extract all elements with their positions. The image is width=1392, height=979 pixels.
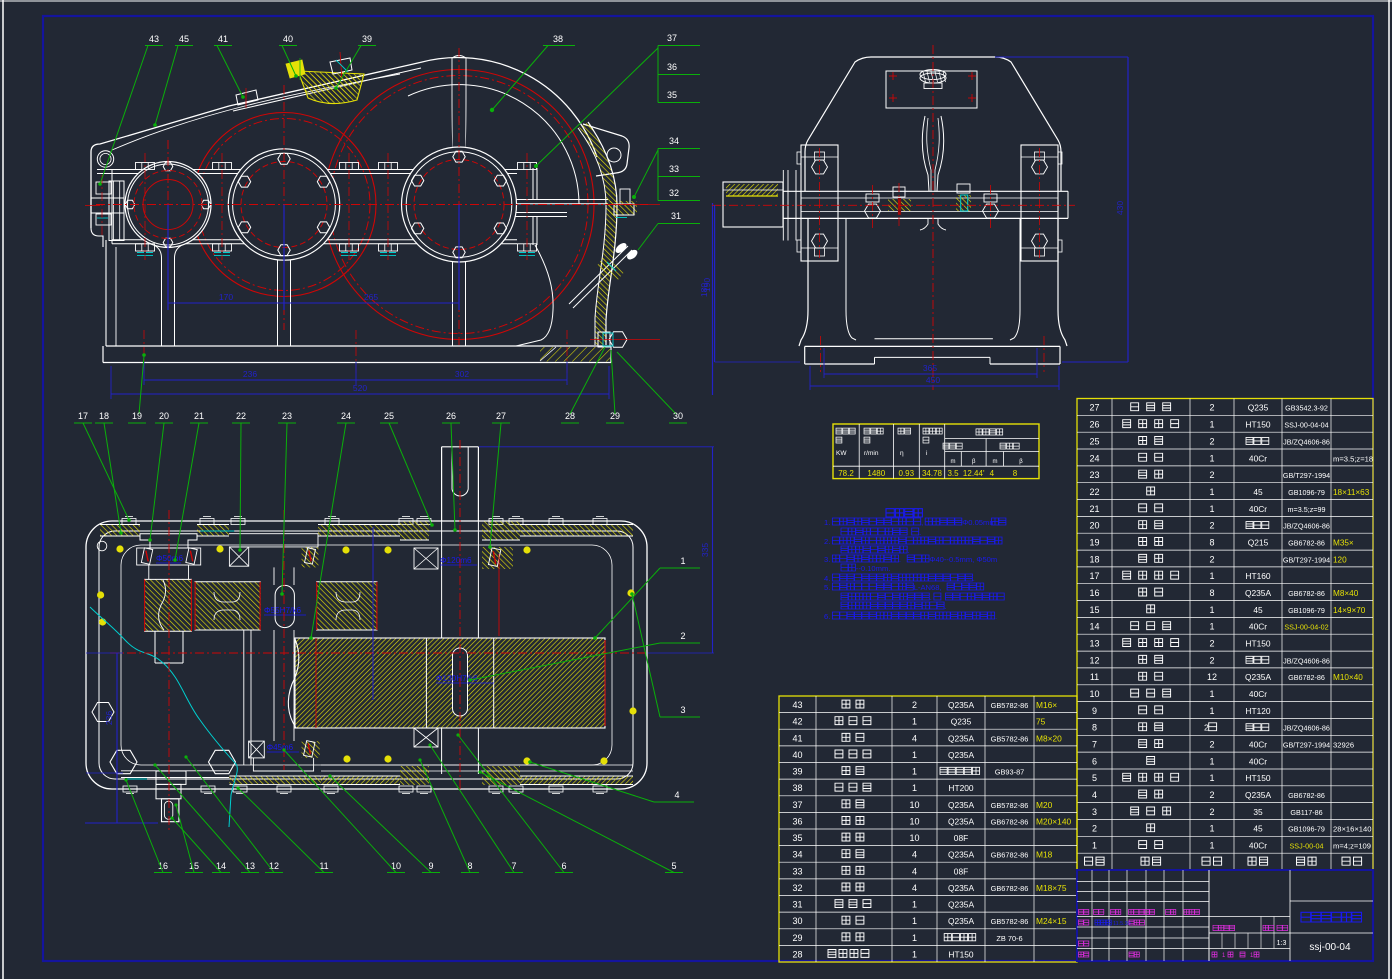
svg-text:78.2: 78.2 [838, 469, 854, 478]
svg-text:GB3542.3-92: GB3542.3-92 [1285, 404, 1328, 413]
svg-text:3.: 3. [824, 555, 830, 564]
svg-text:M8×20: M8×20 [1036, 733, 1062, 743]
svg-text:ZB 70-6: ZB 70-6 [996, 934, 1022, 943]
svg-text:Q235A: Q235A [948, 750, 974, 760]
svg-text:Q235A: Q235A [948, 850, 974, 860]
svg-text:15: 15 [189, 861, 199, 871]
svg-text:29: 29 [792, 933, 802, 943]
svg-text:27: 27 [496, 411, 506, 421]
svg-text:28×16×140: 28×16×140 [1333, 825, 1371, 834]
svg-text:19: 19 [1089, 538, 1099, 548]
svg-text:34.78: 34.78 [922, 469, 943, 478]
svg-text:14: 14 [216, 861, 226, 871]
svg-text:32: 32 [792, 883, 802, 893]
svg-text:Q235A: Q235A [948, 916, 974, 926]
svg-text:265: 265 [364, 292, 378, 302]
svg-text:GB117-86: GB117-86 [1290, 808, 1322, 817]
svg-text:17: 17 [78, 411, 88, 421]
svg-text:45: 45 [1253, 824, 1263, 834]
svg-text:33: 33 [792, 866, 802, 876]
svg-text:34: 34 [792, 850, 802, 860]
svg-text:10: 10 [909, 833, 919, 843]
svg-text:31: 31 [671, 211, 681, 221]
svg-text:Q235A: Q235A [948, 700, 974, 710]
svg-text:12: 12 [269, 861, 279, 871]
svg-text:.: . [930, 593, 932, 602]
svg-text:Φ0.05mm: Φ0.05mm [962, 518, 996, 527]
svg-text:1:3: 1:3 [1277, 940, 1287, 947]
svg-text:430: 430 [1115, 201, 1125, 215]
svg-text:12: 12 [1089, 655, 1099, 665]
svg-text:4: 4 [912, 733, 917, 743]
svg-text:β: β [972, 459, 976, 465]
svg-text:1: 1 [1209, 824, 1214, 834]
svg-text:32: 32 [669, 188, 679, 198]
svg-text:10: 10 [391, 861, 401, 871]
svg-text:8: 8 [1209, 538, 1214, 548]
svg-text:24: 24 [1089, 453, 1099, 463]
svg-text:13: 13 [245, 861, 255, 871]
svg-text:Φ45m6: Φ45m6 [267, 743, 294, 752]
svg-text:2: 2 [1209, 807, 1214, 817]
svg-text:4: 4 [912, 850, 917, 860]
svg-text:30: 30 [673, 411, 683, 421]
svg-text:365: 365 [923, 363, 937, 373]
svg-text:ssj-00-04: ssj-00-04 [1309, 942, 1351, 953]
svg-text:520: 520 [353, 383, 367, 393]
svg-text:1: 1 [912, 750, 917, 760]
svg-text:m=4;z=109: m=4;z=109 [1333, 842, 1371, 851]
svg-text:11: 11 [1090, 672, 1099, 682]
svg-text:2: 2 [1209, 740, 1214, 750]
svg-text:Q235A: Q235A [948, 733, 974, 743]
svg-text:18×11×63: 18×11×63 [1333, 488, 1370, 497]
svg-text:43: 43 [792, 700, 802, 710]
svg-text:23: 23 [1089, 470, 1099, 480]
svg-text:m: m [993, 459, 998, 465]
svg-text:GB5782-86: GB5782-86 [991, 917, 1029, 926]
svg-text:M18: M18 [1036, 850, 1053, 860]
svg-text:24: 24 [341, 411, 351, 421]
svg-text:Φ120m6: Φ120m6 [440, 556, 472, 565]
svg-text:26: 26 [1089, 420, 1099, 430]
svg-text:Q235A: Q235A [1245, 672, 1271, 682]
svg-text:GB1096-79: GB1096-79 [1288, 825, 1325, 834]
svg-text:i: i [926, 450, 927, 457]
svg-text:Φ50m6: Φ50m6 [156, 554, 183, 563]
svg-text:9: 9 [428, 861, 433, 871]
svg-text:GB6782-86: GB6782-86 [991, 884, 1029, 893]
svg-text:SSJ-00-04-02: SSJ-00-04-02 [1284, 623, 1328, 632]
svg-text:HT150: HT150 [1245, 639, 1270, 649]
svg-text:Φ55H7/k6: Φ55H7/k6 [264, 606, 301, 615]
svg-text:M20×140: M20×140 [1036, 816, 1071, 826]
svg-text:M16×: M16× [1036, 700, 1057, 710]
svg-text:13: 13 [1089, 639, 1099, 649]
svg-text:Q235A: Q235A [1245, 588, 1271, 598]
svg-text:2: 2 [912, 700, 917, 710]
svg-text:2: 2 [1209, 436, 1214, 446]
svg-text:36: 36 [667, 62, 677, 72]
svg-text:43: 43 [149, 34, 159, 44]
svg-text:30: 30 [792, 916, 802, 926]
svg-text:GB6782-86: GB6782-86 [1288, 589, 1325, 598]
svg-text:38: 38 [792, 783, 802, 793]
svg-text:36: 36 [792, 816, 802, 826]
svg-text:1: 1 [912, 717, 917, 727]
svg-text:41: 41 [218, 34, 228, 44]
svg-text:1: 1 [1209, 756, 1214, 766]
svg-text:40Cr: 40Cr [1249, 841, 1267, 851]
svg-text:4: 4 [912, 866, 917, 876]
svg-text:1: 1 [912, 949, 917, 959]
svg-text:1: 1 [680, 556, 685, 566]
svg-text:1: 1 [1209, 773, 1214, 783]
svg-text:GB6782-86: GB6782-86 [1288, 539, 1325, 548]
svg-text:10: 10 [909, 816, 919, 826]
svg-text:M8×40: M8×40 [1333, 589, 1359, 598]
svg-text:12.44': 12.44' [963, 469, 985, 478]
svg-text:M20: M20 [1036, 800, 1053, 810]
svg-text:38: 38 [553, 34, 563, 44]
svg-text:4: 4 [674, 790, 679, 800]
svg-text:236: 236 [243, 369, 257, 379]
svg-text:r/min: r/min [864, 450, 879, 457]
svg-text:40Cr: 40Cr [1249, 740, 1267, 750]
svg-text:8: 8 [1209, 588, 1214, 598]
svg-text:GB/T297-1994: GB/T297-1994 [1283, 741, 1330, 750]
svg-text:75: 75 [1036, 717, 1046, 727]
svg-text:1: 1 [912, 900, 917, 910]
svg-text:Q235A: Q235A [1245, 790, 1271, 800]
svg-text:6: 6 [1092, 756, 1097, 766]
svg-text:Q235A: Q235A [948, 900, 974, 910]
svg-text:1: 1 [1209, 420, 1214, 430]
svg-text:40Cr: 40Cr [1249, 756, 1267, 766]
svg-text:302: 302 [455, 369, 469, 379]
svg-text:m=3.5;z=99: m=3.5;z=99 [1288, 505, 1326, 514]
svg-text:17: 17 [1089, 571, 1099, 581]
svg-text:9: 9 [1092, 706, 1097, 716]
svg-text:34: 34 [669, 136, 679, 146]
svg-text:Φ130H7/k6: Φ130H7/k6 [436, 674, 478, 683]
svg-text:HT120: HT120 [1245, 706, 1270, 716]
svg-text:4: 4 [1092, 790, 1097, 800]
svg-text:1: 1 [1209, 504, 1214, 514]
svg-text:L-AN68,: L-AN68, [914, 583, 942, 592]
svg-text:18: 18 [1089, 554, 1099, 564]
svg-text:33: 33 [669, 164, 679, 174]
svg-text:8: 8 [1013, 469, 1018, 478]
svg-text:HT150: HT150 [1245, 420, 1270, 430]
svg-text:22: 22 [1089, 487, 1099, 497]
svg-text:39: 39 [792, 767, 802, 777]
svg-text:3.5: 3.5 [947, 469, 959, 478]
svg-text:η: η [900, 450, 904, 457]
svg-text:18: 18 [99, 411, 109, 421]
svg-text:1: 1 [912, 783, 917, 793]
svg-text:1: 1 [1209, 487, 1214, 497]
svg-text:40Cr: 40Cr [1249, 689, 1267, 699]
svg-text:1: 1 [1209, 689, 1214, 699]
svg-text:0.93: 0.93 [899, 469, 915, 478]
svg-text:45: 45 [1253, 487, 1263, 497]
svg-text:45: 45 [179, 34, 189, 44]
svg-text:GB6782-86: GB6782-86 [1288, 673, 1325, 682]
svg-text:170: 170 [219, 292, 233, 302]
svg-text:KW: KW [836, 450, 847, 457]
svg-text:M18×75: M18×75 [1036, 883, 1067, 893]
svg-text:39: 39 [362, 34, 372, 44]
svg-text:27: 27 [1089, 403, 1099, 413]
svg-text:10: 10 [909, 800, 919, 810]
svg-text:11.5.30: 11.5.30 [1113, 921, 1131, 927]
svg-text:GB5782-86: GB5782-86 [991, 734, 1029, 743]
svg-text:1: 1 [912, 933, 917, 943]
svg-text:10: 10 [1089, 689, 1099, 699]
svg-text:GB5782-86: GB5782-86 [991, 801, 1029, 810]
svg-text:Q235: Q235 [951, 717, 972, 727]
svg-text:JB/ZQ4606-86: JB/ZQ4606-86 [1283, 656, 1330, 665]
svg-text:.: . [908, 546, 910, 555]
svg-text:HT150: HT150 [948, 949, 973, 959]
svg-text:28: 28 [792, 949, 802, 959]
svg-text:Q235A: Q235A [948, 883, 974, 893]
svg-text:21: 21 [194, 411, 204, 421]
svg-text:26: 26 [446, 411, 456, 421]
svg-text:1: 1 [912, 767, 917, 777]
svg-text:2: 2 [1209, 521, 1214, 531]
svg-text:m: m [951, 459, 956, 465]
svg-text:GB1096-79: GB1096-79 [1288, 488, 1325, 497]
svg-text:31: 31 [792, 900, 802, 910]
svg-text:19: 19 [132, 411, 142, 421]
svg-text:14: 14 [1089, 622, 1099, 632]
svg-text:42: 42 [792, 717, 802, 727]
svg-text:2: 2 [680, 631, 685, 641]
svg-text:08F: 08F [954, 866, 968, 876]
svg-text:SSJ-00-04: SSJ-00-04 [1290, 842, 1324, 851]
svg-text:8: 8 [1092, 723, 1097, 733]
svg-text:35: 35 [1253, 807, 1263, 817]
svg-text:7: 7 [1092, 740, 1097, 750]
svg-text:m=3.5;z=18: m=3.5;z=18 [1333, 454, 1373, 463]
svg-text:450: 450 [926, 375, 940, 385]
svg-text:4.: 4. [824, 574, 830, 583]
svg-text:Q235A: Q235A [948, 800, 974, 810]
svg-text:--0.10mm.: --0.10mm. [856, 564, 891, 573]
svg-text:28: 28 [565, 411, 575, 421]
svg-text:2: 2 [1209, 639, 1214, 649]
svg-text:3: 3 [680, 705, 685, 715]
svg-text:.: . [973, 574, 975, 583]
svg-text:37: 37 [792, 800, 802, 810]
svg-text:32926: 32926 [1333, 741, 1354, 750]
svg-text:6.: 6. [824, 612, 830, 621]
svg-text:SSJ-00-04-04: SSJ-00-04-04 [1284, 421, 1328, 430]
svg-text:1: 1 [1209, 841, 1214, 851]
svg-text:2: 2 [1209, 554, 1214, 564]
svg-text:41: 41 [792, 733, 802, 743]
svg-text:5: 5 [671, 861, 676, 871]
svg-text:JB/ZQ4606-86: JB/ZQ4606-86 [1283, 437, 1330, 446]
svg-text:120: 120 [1333, 555, 1347, 564]
svg-text:40: 40 [283, 34, 293, 44]
svg-text:35: 35 [792, 833, 802, 843]
svg-text:1: 1 [1209, 706, 1214, 716]
svg-text:1: 1 [912, 916, 917, 926]
svg-text:236: 236 [104, 711, 114, 725]
svg-text:14×9×70: 14×9×70 [1333, 606, 1366, 615]
svg-text:M35×: M35× [1333, 539, 1354, 548]
svg-text:HT200: HT200 [948, 783, 973, 793]
svg-text:1: 1 [1092, 841, 1097, 851]
svg-text:22: 22 [236, 411, 246, 421]
svg-text:GB6782-86: GB6782-86 [991, 817, 1029, 826]
svg-text:1480: 1480 [867, 469, 885, 478]
svg-text:Q215: Q215 [1248, 538, 1269, 548]
svg-text:GB/T297-1994: GB/T297-1994 [1283, 555, 1330, 564]
svg-text:.: . [945, 602, 947, 611]
svg-text:1: 1 [1209, 571, 1214, 581]
svg-text:40Cr: 40Cr [1249, 504, 1267, 514]
svg-text:2: 2 [1092, 824, 1097, 834]
svg-text:JB/ZQ4606-86: JB/ZQ4606-86 [1283, 522, 1330, 531]
svg-text:4: 4 [990, 469, 995, 478]
svg-text:.: . [919, 528, 921, 537]
svg-text:1: 1 [1209, 453, 1214, 463]
svg-text:HT150: HT150 [1245, 773, 1270, 783]
svg-text:GB93-87: GB93-87 [995, 768, 1025, 777]
svg-text:.: . [899, 555, 901, 564]
svg-text:37: 37 [667, 33, 677, 43]
svg-text:2: 2 [1209, 655, 1214, 665]
svg-text:08F: 08F [954, 833, 968, 843]
svg-text:335: 335 [700, 543, 710, 557]
svg-text:1.: 1. [824, 518, 830, 527]
svg-text:2.: 2. [824, 537, 830, 546]
svg-text:GB1096-79: GB1096-79 [1288, 606, 1325, 615]
svg-text:,: , [921, 518, 923, 527]
svg-text:25: 25 [384, 411, 394, 421]
svg-text:40Cr: 40Cr [1249, 622, 1267, 632]
svg-text:21: 21 [1089, 504, 1099, 514]
svg-text:15: 15 [1089, 605, 1099, 615]
svg-text:2: 2 [1209, 470, 1214, 480]
svg-text:12: 12 [1207, 672, 1217, 682]
svg-text:JB/ZQ4606-86: JB/ZQ4606-86 [1283, 724, 1330, 733]
svg-text:23: 23 [282, 411, 292, 421]
svg-text:29: 29 [610, 411, 620, 421]
svg-text:3: 3 [1092, 807, 1097, 817]
svg-text:GB6782-86: GB6782-86 [1288, 791, 1325, 800]
svg-text:Q235A: Q235A [948, 816, 974, 826]
svg-text:20: 20 [159, 411, 169, 421]
svg-text:.: . [995, 612, 997, 621]
svg-text:190: 190 [702, 278, 712, 292]
svg-text:1: 1 [1209, 605, 1214, 615]
svg-text:40: 40 [792, 750, 802, 760]
svg-text:45: 45 [1253, 605, 1263, 615]
svg-text:GB/T297-1994: GB/T297-1994 [1283, 471, 1330, 480]
svg-text:Q235: Q235 [1248, 403, 1269, 413]
svg-text:40Cr: 40Cr [1249, 453, 1267, 463]
svg-text:M24×15: M24×15 [1036, 916, 1067, 926]
svg-text:20: 20 [1089, 521, 1099, 531]
svg-text:16: 16 [1089, 588, 1099, 598]
svg-text:Φ40--0.5mm, Φ50m: Φ40--0.5mm, Φ50m [929, 555, 997, 564]
svg-text:β: β [1019, 459, 1023, 465]
svg-text:5: 5 [1092, 773, 1097, 783]
svg-text:5.: 5. [824, 583, 830, 592]
svg-text:35: 35 [667, 90, 677, 100]
svg-text:GB6782-86: GB6782-86 [991, 851, 1029, 860]
svg-text:2: 2 [1209, 403, 1214, 413]
svg-text:2: 2 [1209, 790, 1214, 800]
svg-text:GB5782-86: GB5782-86 [991, 701, 1029, 710]
svg-text:HT160: HT160 [1245, 571, 1270, 581]
svg-text:1: 1 [1209, 622, 1214, 632]
svg-text:M10×40: M10×40 [1333, 673, 1363, 682]
svg-text:4: 4 [912, 883, 917, 893]
svg-text:25: 25 [1089, 436, 1099, 446]
